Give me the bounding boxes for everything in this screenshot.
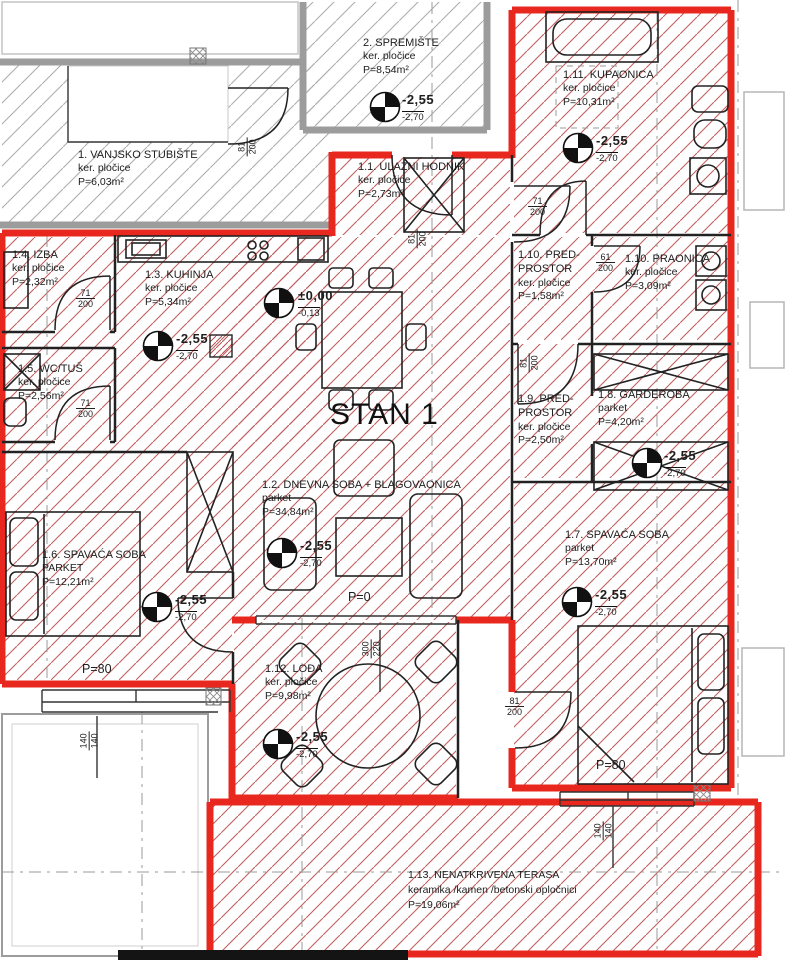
room-label-spavaca-soba-17: 1.7. SPAVAĆA SOBA parket P=13,70m² (565, 528, 725, 570)
level-value-spavaca6: -2,55 -2,70 (175, 592, 207, 625)
level-marker-icon (371, 93, 400, 122)
level-value-garderoba: -2,55 -2,70 (664, 448, 696, 481)
floor-plan: 1. VANJSKO STUBIŠTE ker. pločice P=6,03m… (0, 0, 786, 960)
dim-door-81-200-spavaca7: 81 200 (505, 696, 524, 718)
dim-door-81-200-entry: 81 200 (407, 229, 429, 248)
dim-door-71-200-hodnik: 71 200 (528, 196, 547, 218)
room-label-wc-tus: 1.5. WC/TUŠ ker. pločice P=2,56m² (18, 362, 128, 404)
room-label-spremiste: 2. SPREMIŠTE ker. pločice P=8,54m² (363, 36, 513, 78)
bottom-bar (118, 950, 408, 960)
dim-window-140-140-right: 140 140 (593, 821, 615, 840)
room-label-kupaonica: 1.11. KUPAONICA ker. pločice P=10,31m² (563, 68, 723, 110)
level-value-dnevna: -2,55 -2,70 (300, 538, 332, 571)
dim-opening-300-220-loda: 300 220 (361, 639, 383, 658)
room-label-pred-prostor-19: 1.9. PRED-PROSTOR ker. pločice P=2,50m² (518, 392, 598, 448)
dim-window-140-140-left: 140 140 (79, 731, 101, 750)
room-label-loda: 1.12. LOĐA ker. pločice P=9,98m² (265, 662, 375, 704)
level-value-kupaonica: -2,55 -2,70 (596, 133, 628, 166)
level-value-spremiste: -2,55 -2,70 (402, 92, 434, 125)
level-marker-icon (265, 289, 294, 318)
p80-label-right: P=80 (596, 758, 626, 772)
p0-label: P=0 (348, 590, 371, 604)
level-marker-icon (268, 539, 297, 568)
dim-door-61-200-praonica: 61 200 (596, 252, 615, 274)
dim-door-81-200-pred19: 81 200 (519, 353, 541, 372)
room-label-dnevna-soba: 1.2. DNEVNA SOBA + BLAGOVAONICA parket P… (262, 478, 502, 520)
room-label-spavaca-soba-16: 1.6. SPAVAĆA SOBA PARKET P=12,21m² (42, 548, 222, 590)
room-label-terasa: 1.13. NENATKRIVENA TERASA keramika /kame… (408, 868, 668, 914)
dim-door-71-200-izba: 71 200 (76, 288, 95, 310)
neighbor-outlines (742, 92, 784, 756)
level-value-kuhinja-zero: ±0,00 -0,13 (298, 288, 333, 321)
level-marker-icon (564, 134, 593, 163)
p80-label-left: P=80 (82, 662, 112, 676)
level-marker-icon (144, 332, 173, 361)
room-label-pred-prostor-110: 1.10. PRED-PROSTOR ker. pločice P=1,58m² (518, 248, 598, 304)
shaft (210, 335, 232, 357)
apartment-title: STAN 1 (330, 398, 439, 432)
room-label-izba: 1.4. IZBA ker. pločice P=2,32m² (12, 248, 122, 290)
room-label-praonica: 1.10. PRAONICA ker. pločice P=3,09m² (625, 252, 729, 294)
dim-door-81-200-stairs: 81 200 (237, 137, 259, 156)
level-value-loda: -2,55 -2,70 (296, 729, 328, 762)
room-label-ulazni-hodnik: 1.1. ULAZNI HODNIK ker. pločice P=2,73m² (358, 160, 508, 202)
dim-door-71-200-wc: 71 200 (76, 398, 95, 420)
level-marker-icon (633, 449, 662, 478)
room-label-garderoba: 1.8. GARDEROBA parket P=4,20m² (598, 388, 738, 430)
level-value-spavaca7: -2,55 -2,70 (595, 587, 627, 620)
room-label-kuhinja: 1.3. KUHINJA ker. pločice P=5,34m² (145, 268, 265, 310)
level-marker-icon (563, 588, 592, 617)
level-marker-icon (264, 730, 293, 759)
level-value-kuhinja: -2,55 -2,70 (176, 331, 208, 364)
level-marker-icon (143, 593, 172, 622)
